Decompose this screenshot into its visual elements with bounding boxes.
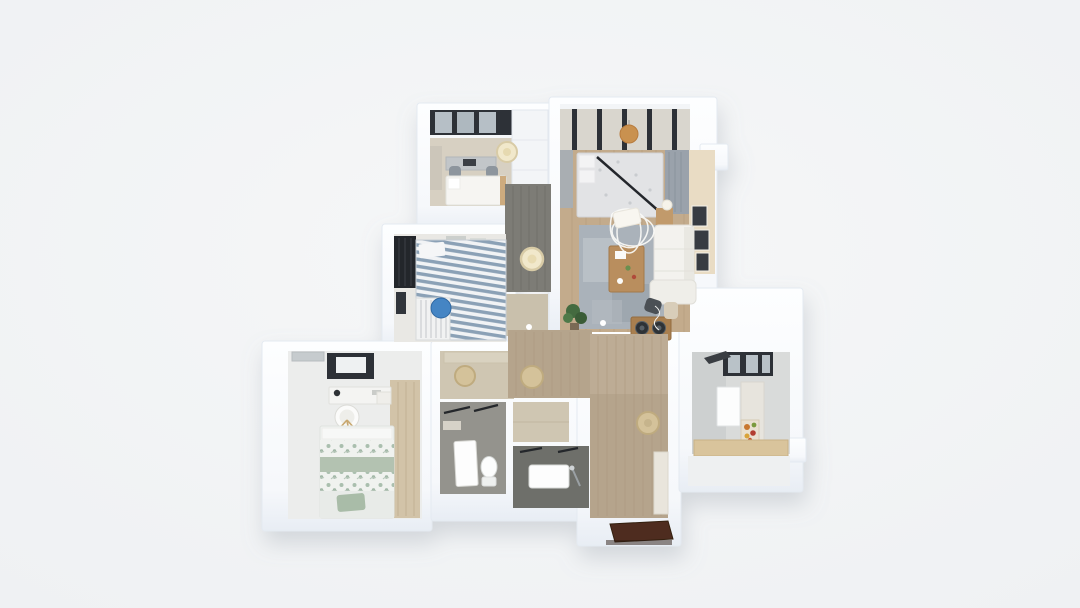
entry-floor-sheen: [590, 334, 668, 394]
daybed-pillow-1: [579, 155, 595, 168]
study-window-sill: [430, 135, 512, 138]
floorplan-render: [0, 0, 1080, 608]
living-threshold-dot: [600, 320, 606, 326]
master-bed-floral-1: [320, 440, 394, 457]
bath1-vanity: [443, 421, 461, 430]
room-kids: [394, 234, 506, 342]
hall-tan-stool: [455, 366, 475, 386]
hall-shelf: [444, 352, 510, 363]
living-curtain-left: [560, 150, 573, 208]
living-balcony-rail: [560, 104, 690, 109]
room-master: [288, 351, 422, 519]
bathroom-2: [513, 446, 589, 508]
kitchen-window-glass: [728, 355, 770, 373]
master-bed-pillows: [322, 428, 392, 439]
living-orange-pendant: [620, 125, 638, 143]
study-desk-monitor: [463, 159, 476, 166]
bathroom-1: [440, 402, 506, 494]
master-window-glass: [336, 357, 366, 373]
study-side-cabinet: [430, 146, 442, 190]
bath2-bathtub: [529, 465, 569, 488]
storage-closet: [513, 402, 569, 442]
corridor-threshold-dot: [526, 324, 532, 330]
entry-door: [610, 521, 673, 542]
master-bed: [320, 426, 394, 518]
study-bed-pillow: [448, 178, 460, 189]
corridor-ceiling-light-inner: [528, 255, 537, 264]
living-side-table: [656, 208, 673, 225]
bath1-shower-tray: [454, 440, 478, 486]
room-kitchen: [688, 351, 790, 486]
daybed-pillow-2: [579, 170, 595, 183]
master-desk-lamp: [334, 390, 340, 396]
kids-bench-dark: [396, 292, 406, 314]
bath1-toilet: [481, 457, 497, 478]
inner-hall: [440, 351, 514, 399]
entry-tan-light-2-inner: [644, 419, 652, 427]
master-nightstand: [377, 392, 391, 404]
study-window-glass: [435, 112, 496, 133]
master-mirror: [292, 352, 324, 361]
master-bed-floral-2: [320, 472, 394, 491]
corridor-floor: [505, 184, 551, 292]
study-ceiling-light-inner: [503, 148, 511, 156]
kitchen-fridge: [717, 387, 740, 426]
entry-door-shadow: [606, 540, 672, 545]
entry-tan-light-1: [521, 366, 543, 388]
corridor: [505, 184, 551, 336]
bath1-toilet-tank: [482, 477, 496, 486]
entry-shoe-cabinet: [654, 452, 668, 514]
dining-chair-beige: [664, 302, 678, 319]
master-bed-sage-band: [320, 457, 394, 472]
kitchen-lower-floor: [688, 456, 790, 486]
kids-blue-stool: [431, 298, 451, 318]
kids-bed-pillow: [418, 242, 445, 259]
kitchen-lower-cabinet: [694, 440, 788, 456]
corridor-door-mat: [506, 294, 548, 336]
floorplan-svg: [0, 0, 1080, 608]
table-lamp: [662, 200, 672, 210]
master-bed-cushion: [336, 493, 365, 512]
bath2-shower-head: [570, 466, 575, 471]
